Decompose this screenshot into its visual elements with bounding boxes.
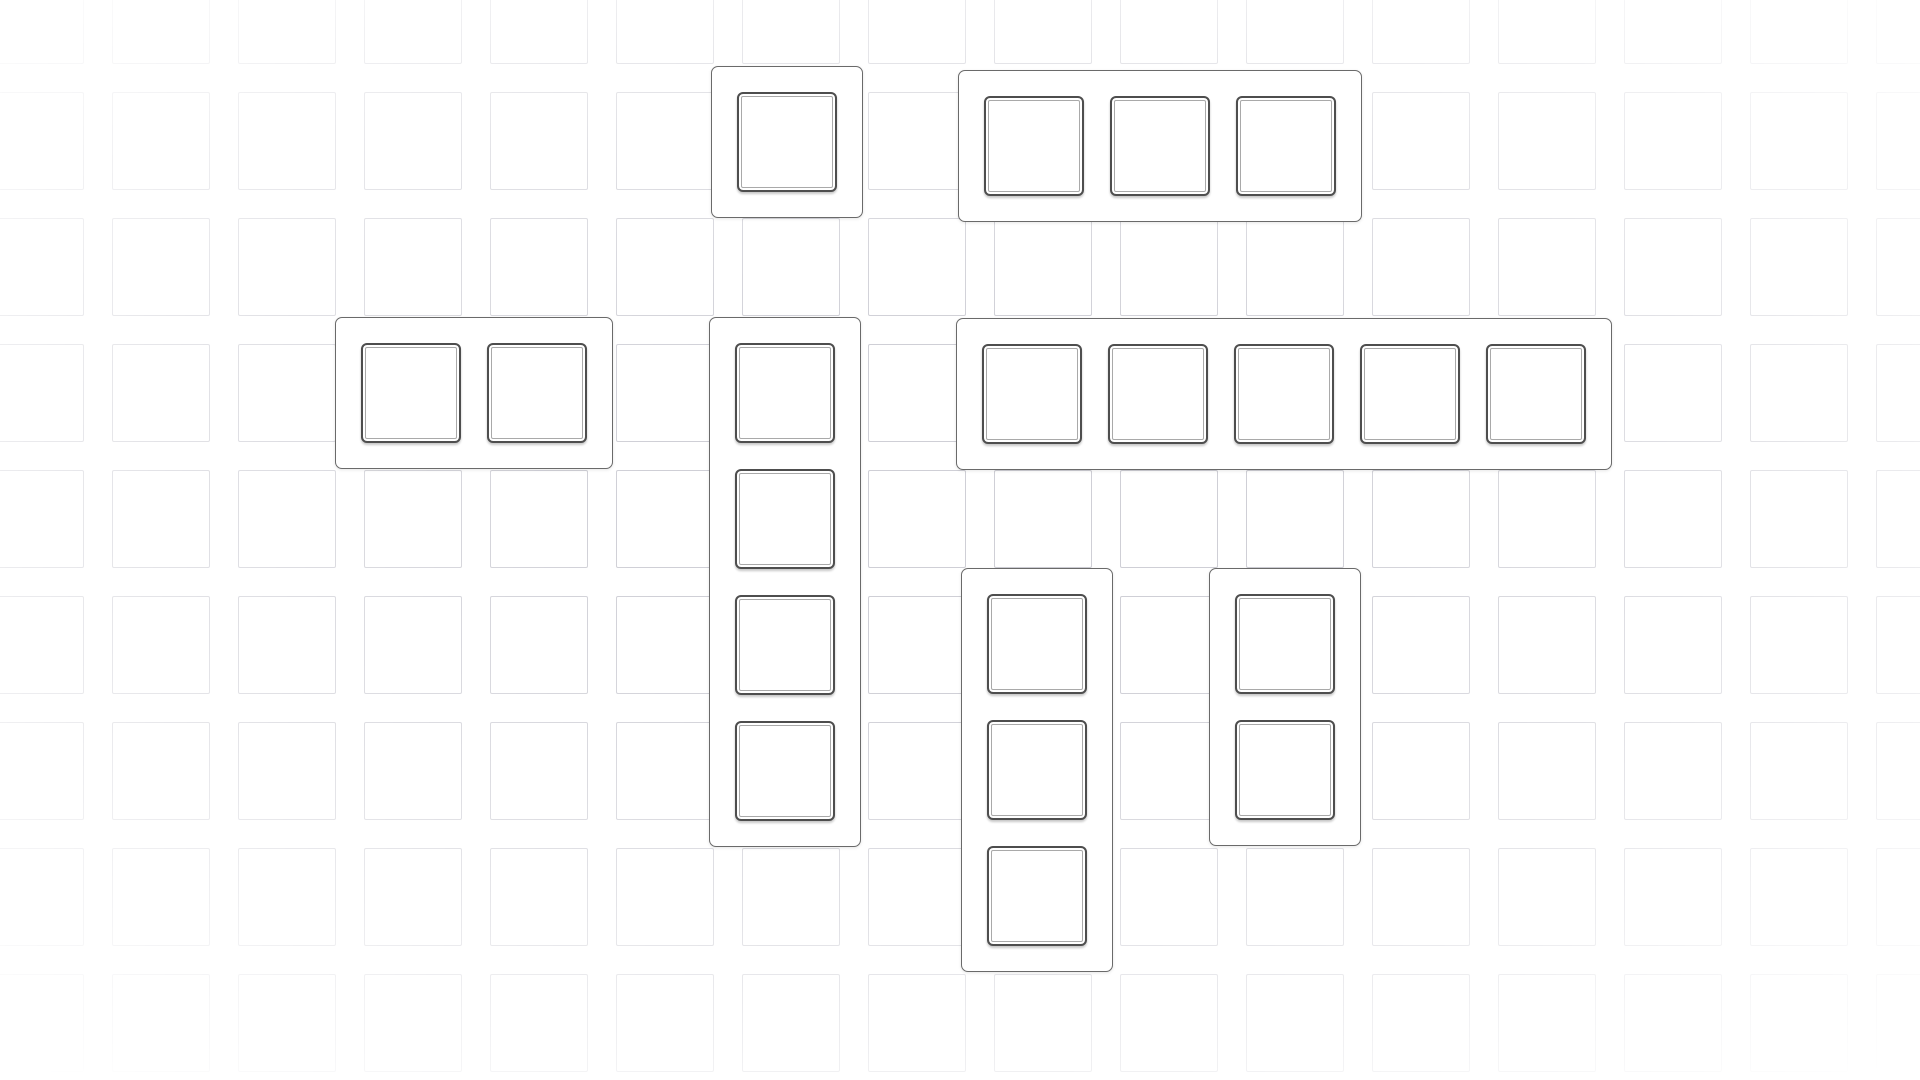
piece-1x2-left-slot-2[interactable] [487,343,587,443]
piece-2x1-vertical-slot-2[interactable] [1235,720,1335,820]
piece-1x5-wide[interactable] [956,318,1612,470]
piece-3x1-vertical[interactable] [961,568,1113,972]
board [0,0,1920,1080]
piece-4x1-vertical-slot-2[interactable] [735,469,835,569]
piece-1x5-wide-slot-2[interactable] [1108,344,1208,444]
piece-4x1-vertical-slot-3[interactable] [735,595,835,695]
piece-1x5-wide-slot-1[interactable] [982,344,1082,444]
piece-1x2-left[interactable] [335,317,613,469]
piece-3x1-vertical-slot-2[interactable] [987,720,1087,820]
piece-1x5-wide-slot-5[interactable] [1486,344,1586,444]
piece-2x1-vertical-slot-1[interactable] [1235,594,1335,694]
piece-1x3-top[interactable] [958,70,1362,222]
piece-1x3-top-slot-2[interactable] [1110,96,1210,196]
puzzle-page: { "board": { "width": 1920, "height": 10… [0,0,1920,1080]
piece-1x1-top-slot-1[interactable] [737,92,837,192]
piece-3x1-vertical-slot-3[interactable] [987,846,1087,946]
piece-1x5-wide-slot-4[interactable] [1360,344,1460,444]
piece-4x1-vertical-slot-1[interactable] [735,343,835,443]
piece-1x2-left-slot-1[interactable] [361,343,461,443]
piece-4x1-vertical-slot-4[interactable] [735,721,835,821]
piece-3x1-vertical-slot-1[interactable] [987,594,1087,694]
piece-1x5-wide-slot-3[interactable] [1234,344,1334,444]
piece-2x1-vertical[interactable] [1209,568,1361,846]
piece-1x3-top-slot-1[interactable] [984,96,1084,196]
pieces-layer [0,0,1920,1080]
piece-1x1-top[interactable] [711,66,863,218]
piece-1x3-top-slot-3[interactable] [1236,96,1336,196]
piece-4x1-vertical[interactable] [709,317,861,847]
